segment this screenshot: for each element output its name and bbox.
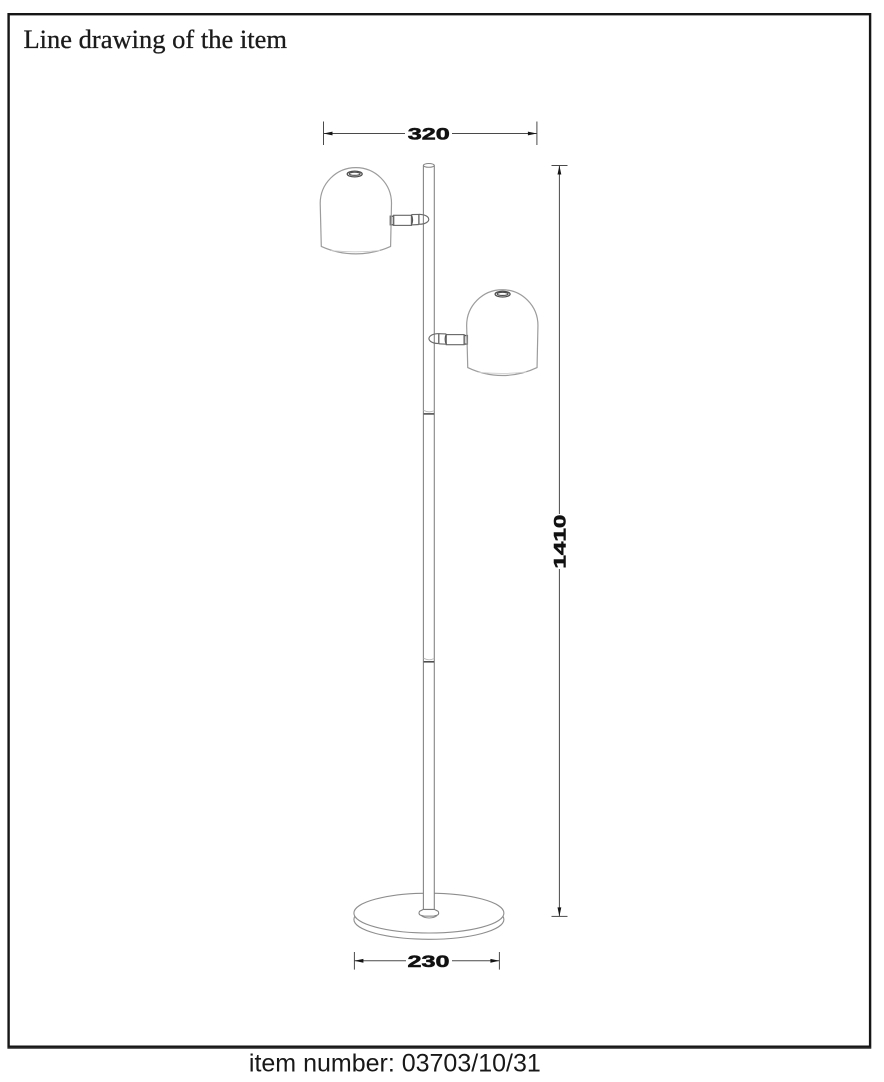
svg-text:1410: 1410 (551, 515, 570, 569)
svg-text:320: 320 (408, 125, 450, 144)
svg-text:230: 230 (408, 952, 450, 971)
svg-text:Line drawing of the item: Line drawing of the item (24, 24, 288, 54)
svg-text:item number: 03703/10/31: item number: 03703/10/31 (249, 1050, 541, 1078)
